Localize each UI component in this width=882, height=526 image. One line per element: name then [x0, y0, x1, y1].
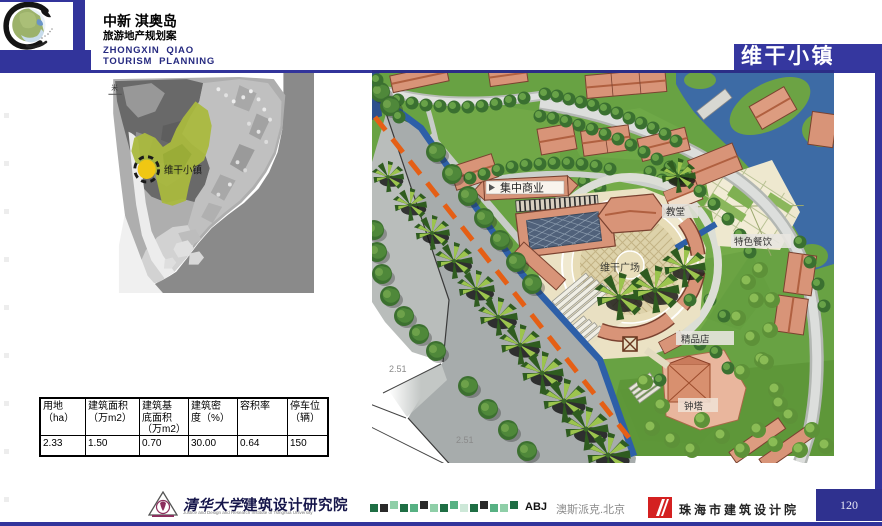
svg-text:2.51: 2.51: [456, 435, 474, 445]
svg-text:集中商业: 集中商业: [500, 181, 544, 195]
svg-text:教堂: 教堂: [666, 206, 685, 218]
svg-text:2.51: 2.51: [389, 364, 407, 374]
svg-text:精品店: 精品店: [681, 334, 710, 346]
svg-text:维干小镇: 维干小镇: [164, 163, 202, 176]
svg-text:维干广场: 维干广场: [600, 261, 640, 274]
svg-text:米: 米: [111, 83, 118, 92]
svg-text:钟塔: 钟塔: [684, 401, 704, 413]
svg-text:特色餐饮: 特色餐饮: [734, 236, 773, 248]
